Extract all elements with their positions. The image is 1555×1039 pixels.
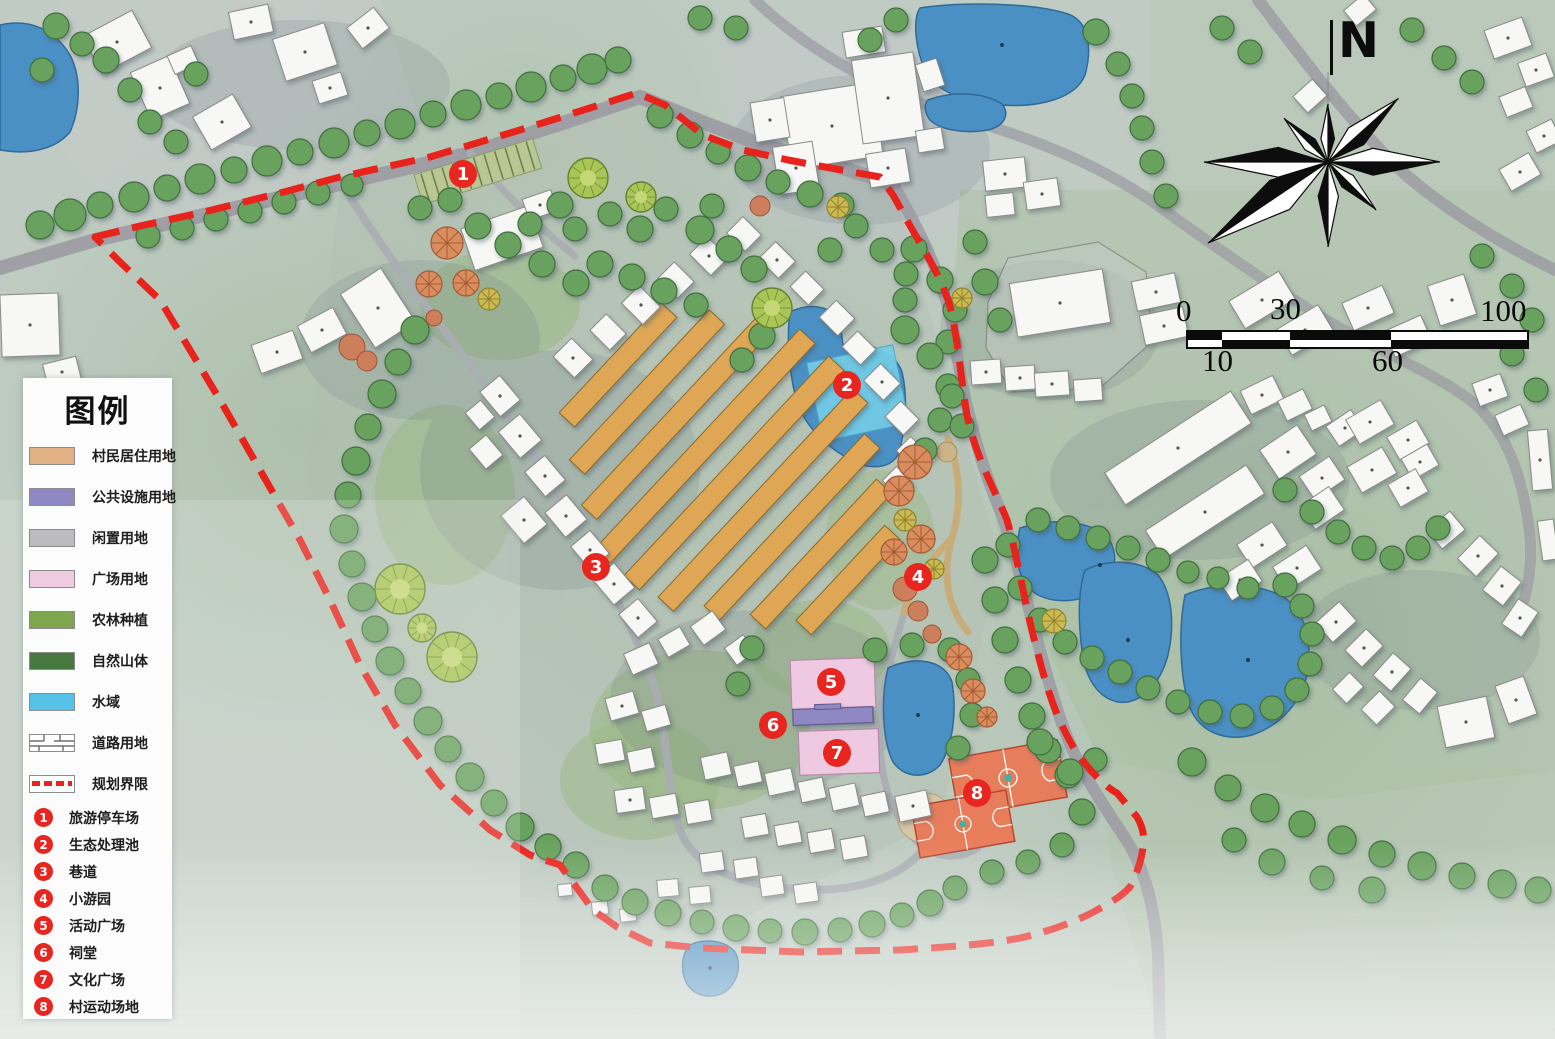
tree [1154,184,1178,208]
tree [1210,16,1234,40]
legend-item-boundary: 规划界限 [23,763,172,804]
north-axis-line [1330,20,1333,75]
ornamental-tree [977,707,997,727]
tree [818,238,842,262]
building [0,293,60,357]
tree [1285,678,1309,702]
tree [577,54,607,84]
tree [1273,478,1297,502]
building [614,787,646,814]
svg-text:3: 3 [590,557,603,578]
tree [495,232,521,258]
tree [1290,594,1314,618]
svg-text:1: 1 [457,164,470,185]
legend-item-residential: 村民居住用地 [23,435,172,476]
number-badge: 8 [34,997,53,1016]
fan-tree [568,158,608,198]
map-marker-5: 5 [817,668,845,696]
legend-item-plaza: 广场用地 [23,558,172,599]
building [1073,378,1102,402]
legend-item-public-facility: 公共设施用地 [23,476,172,517]
legend-item-road: 道路用地 [23,722,172,763]
number-badge: 6 [34,943,53,962]
tree [221,157,247,183]
tree [1027,729,1053,755]
building [985,193,1015,218]
scale-tick-100: 100 [1480,295,1527,326]
tree [963,230,987,254]
tree [1460,70,1484,94]
tree [518,212,542,236]
svg-text:5: 5 [825,672,838,693]
fan-tree [626,182,656,212]
tree [988,308,1012,332]
legend-item-idle-land: 闲置用地 [23,517,172,558]
ornamental-tree [478,288,500,310]
legend-item-farmland: 农林种植 [23,599,172,640]
tree [401,316,429,344]
tree [119,182,149,212]
building [764,768,795,796]
ornamental-tree [894,509,916,531]
building [741,813,769,838]
ornamental-tree [952,288,972,308]
building [1034,371,1070,397]
tree [1352,536,1376,560]
tree [724,16,748,40]
building [1023,178,1061,210]
tree [619,264,645,290]
tree [900,633,924,657]
tree [1120,84,1144,108]
tree [858,28,882,52]
tree [70,32,94,56]
residential-swatch [29,447,75,465]
tree [686,216,714,244]
map-marker-2: 2 [833,371,861,399]
tree [408,196,432,220]
tree [1108,660,1132,684]
water-swatch [29,693,75,711]
tree [319,128,349,158]
building [750,98,790,143]
tree [368,380,396,408]
public-facility-swatch [29,488,75,506]
tree [1146,548,1170,572]
number-badge: 7 [34,970,53,989]
tree [1432,46,1456,70]
building [734,761,763,787]
ornamental-tree [431,227,463,259]
ornamental-tree [881,539,907,565]
shrub [750,196,770,216]
tree [1300,500,1324,524]
tree [1198,700,1222,724]
building [983,157,1028,191]
tree [797,181,823,207]
tree [1083,19,1109,45]
building [828,783,859,811]
tree [726,672,750,696]
tree [1215,775,1241,801]
ornamental-tree [961,679,985,703]
scale-bar-segments [1186,330,1529,349]
map-marker-6: 6 [759,711,787,739]
tree [1136,676,1160,700]
tree [1273,573,1297,597]
tree [598,202,622,226]
tree [465,213,491,239]
farmland-swatch [29,611,75,629]
ornamental-tree [946,644,972,670]
tree [1207,567,1229,589]
tree [972,269,998,295]
tree [844,214,868,238]
shrub [923,625,941,643]
tree [928,408,952,432]
building [798,777,827,803]
legend-number-5: 5 活动广场 [23,912,172,939]
tree [894,262,918,286]
north-label: N [1338,12,1379,69]
map-marker-8: 8 [963,779,991,807]
legend-item-mountain: 自然山体 [23,640,172,681]
legend-number-7: 7 文化广场 [23,966,172,993]
tree [1026,508,1050,532]
tree [1056,516,1080,540]
tree [740,636,764,660]
svg-text:8: 8 [971,783,984,804]
tree [184,62,208,86]
tree [901,236,927,262]
tree [529,251,555,277]
tree [870,238,894,262]
scale-tick-30: 30 [1270,293,1301,324]
tree [1166,690,1190,714]
tree [1230,704,1254,728]
tree [716,236,742,262]
map-marker-4: 4 [904,563,932,591]
tree [651,278,677,304]
building [970,359,1002,385]
legend-number-6: 6 祠堂 [23,939,172,966]
tree [1057,759,1083,785]
building [649,793,679,818]
tree [735,155,761,181]
building [700,752,731,780]
scale-bar: 0 30 100 10 60 [1150,293,1555,373]
tree [1005,667,1031,693]
shrub [908,601,928,621]
scale-tick-60: 60 [1372,345,1403,376]
tree [1130,116,1154,140]
tree [1140,150,1164,174]
boundary-swatch [29,775,75,793]
ornamental-tree [1042,609,1066,633]
tree [730,348,754,372]
tree [1237,577,1259,599]
number-badge: 2 [34,835,53,854]
tree [1289,811,1315,837]
tree [1260,696,1284,720]
map-marker-7: 7 [823,739,851,767]
tree [917,343,943,369]
tree [1380,546,1404,570]
fan-tree [752,288,792,328]
tree [972,547,998,573]
tree [654,197,678,221]
tree [927,267,953,293]
scale-tick-0: 0 [1176,295,1192,326]
svg-text:4: 4 [912,567,925,588]
legend-panel: 图例 村民居住用地 公共设施用地 闲置用地 广场用地 农林种植 自然山体 水域 … [23,378,172,1019]
legend-item-water: 水域 [23,681,172,722]
tree [627,216,653,242]
tree [420,101,446,127]
tree [863,638,887,662]
tree [1116,536,1140,560]
tree [185,164,215,194]
number-badge: 3 [34,862,53,881]
tree [563,270,589,296]
svg-text:7: 7 [831,743,844,764]
tree [1300,622,1324,646]
legend-title: 图例 [23,386,172,431]
map-marker-3: 3 [582,553,610,581]
tree [1406,536,1430,560]
tree [54,199,86,231]
tree [700,194,724,218]
tree [563,217,587,241]
tree [451,90,481,120]
tree [287,139,313,165]
building [915,127,944,153]
tree [87,192,113,218]
building [851,52,924,144]
scale-tick-10: 10 [1202,345,1233,376]
building [595,739,625,764]
tree [884,8,908,32]
tree [550,65,576,91]
tree [516,72,546,102]
ornamental-tree [898,445,932,479]
tree [1053,630,1077,654]
building [861,791,890,817]
ornamental-tree [416,271,442,297]
tree [1470,244,1494,268]
number-badge: 4 [34,889,53,908]
tree [605,47,631,73]
ornamental-tree [827,196,849,218]
tree [1524,378,1548,402]
tree [486,83,512,109]
tree [1177,561,1199,583]
village-plan-map: 1 2 3 4 5 6 7 8 N 0 30 100 10 60 图例 村民居住… [0,0,1555,1039]
tree [1019,703,1045,729]
tree [438,188,462,212]
tree [1400,18,1424,42]
tree [547,192,573,218]
tree [940,384,964,408]
svg-text:2: 2 [841,375,854,396]
tree [946,736,970,760]
tree [154,175,180,201]
legend-number-4: 4 小游园 [23,885,172,912]
number-badge: 1 [34,808,53,827]
tree [43,13,69,39]
tree [1086,526,1110,550]
tree [355,414,381,440]
legend-number-8: 8 村运动场地 [23,993,172,1020]
tree [385,349,411,375]
ornamental-tree [453,270,479,296]
road-swatch [29,734,75,752]
tree [354,120,380,146]
tree [1106,52,1130,76]
tree [688,6,712,30]
building [684,799,712,824]
map-marker-1: 1 [449,160,477,188]
tree [891,316,919,344]
number-badge: 5 [34,916,53,935]
tree [341,174,363,196]
shrub [357,351,377,371]
tree [93,47,119,73]
legend-number-2: 2 生态处理池 [23,831,172,858]
tree [1069,799,1095,825]
tree [1426,516,1450,540]
tree [385,109,415,139]
tree [1326,520,1350,544]
tree [1178,748,1206,776]
tree [342,447,370,475]
tree [1238,40,1262,64]
tree [893,288,917,312]
tree [741,256,767,282]
building [1004,365,1036,391]
tree [766,170,790,194]
tree [164,130,188,154]
tree [992,627,1018,653]
tree [982,587,1008,613]
tree [1080,646,1104,670]
tree [138,110,162,134]
idle-land-swatch [29,529,75,547]
ornamental-tree [884,476,914,506]
tree [1251,794,1279,822]
tree [118,78,142,102]
mountain-swatch [29,652,75,670]
tree [684,293,708,317]
map-artwork: 1 2 3 4 5 6 7 8 [0,0,1555,1039]
tree [26,211,54,239]
tree [30,58,54,82]
tree [1298,652,1322,676]
tree [587,251,613,277]
legend-number-3: 3 巷道 [23,858,172,885]
legend-number-1: 1 旅游停车场 [23,804,172,831]
building [866,148,911,188]
building [627,747,656,773]
shrub [426,310,442,326]
plaza-swatch [29,570,75,588]
tree [252,146,282,176]
svg-text:6: 6 [767,715,780,736]
